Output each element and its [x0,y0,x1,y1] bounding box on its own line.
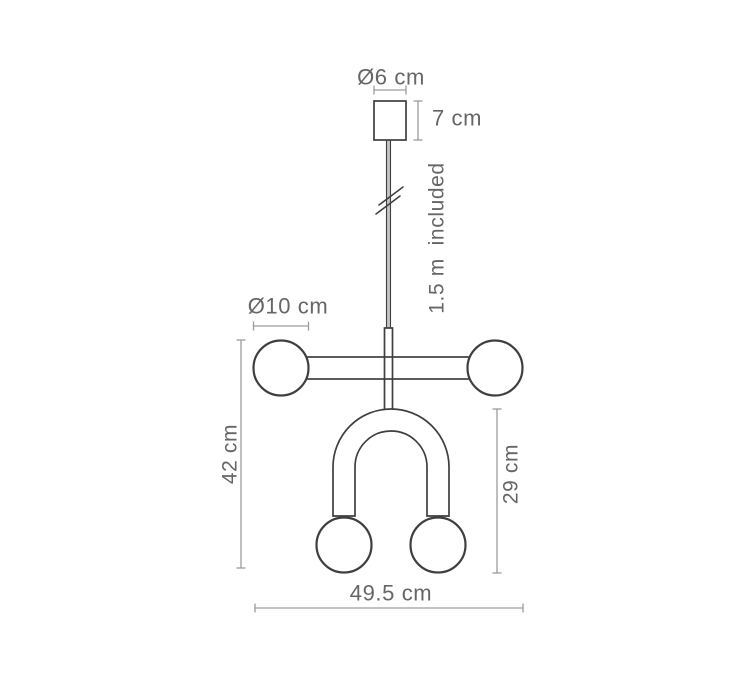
sphere-diameter-label: Ø10 cm [248,294,329,319]
canopy-height-label: 7 cm [432,106,482,131]
lamp-diagram-canvas: Ø6 cm 7 cm 1.5 m included Ø10 cm 42 cm 2… [0,0,744,678]
bottom-right-sphere [411,518,466,573]
sphere-diameter-dimension [254,322,309,331]
top-right-sphere [468,341,523,396]
dimension-labels: Ø6 cm 7 cm 1.5 m included Ø10 cm 42 cm 2… [219,65,523,606]
bottom-left-sphere [317,518,372,573]
u-tube-height-label: 29 cm [500,444,523,504]
lamp-drawing [254,101,523,573]
canopy-height-dimension [414,101,423,140]
total-height-label: 42 cm [219,424,242,484]
top-left-sphere [254,341,309,396]
suspension-cable [387,140,391,329]
total-width-label: 49.5 cm [350,581,432,606]
center-stem [385,328,393,413]
canopy-diameter-label: Ø6 cm [357,65,425,90]
u-tube [333,409,449,516]
ceiling-canopy [374,101,406,140]
dimension-diagram: Ø6 cm 7 cm 1.5 m included Ø10 cm 42 cm 2… [0,0,744,678]
cable-length-label: 1.5 m included [426,162,449,313]
